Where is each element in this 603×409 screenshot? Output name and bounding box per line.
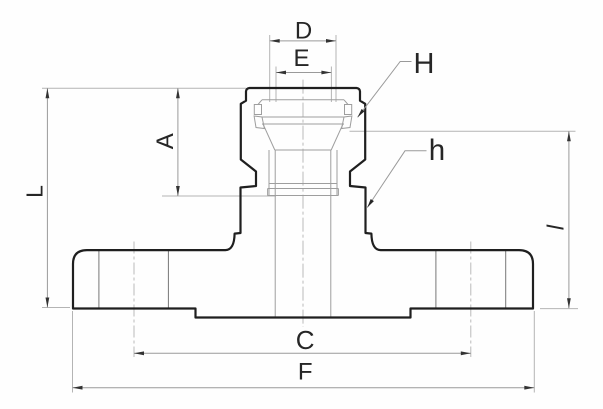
svg-text:E: E xyxy=(293,45,309,72)
svg-text:D: D xyxy=(295,18,312,45)
svg-text:h: h xyxy=(429,134,445,167)
svg-text:l: l xyxy=(543,224,569,230)
svg-text:L: L xyxy=(21,185,47,198)
svg-text:H: H xyxy=(414,48,435,80)
svg-text:A: A xyxy=(152,133,179,149)
svg-text:C: C xyxy=(296,325,315,355)
svg-text:F: F xyxy=(298,359,313,386)
